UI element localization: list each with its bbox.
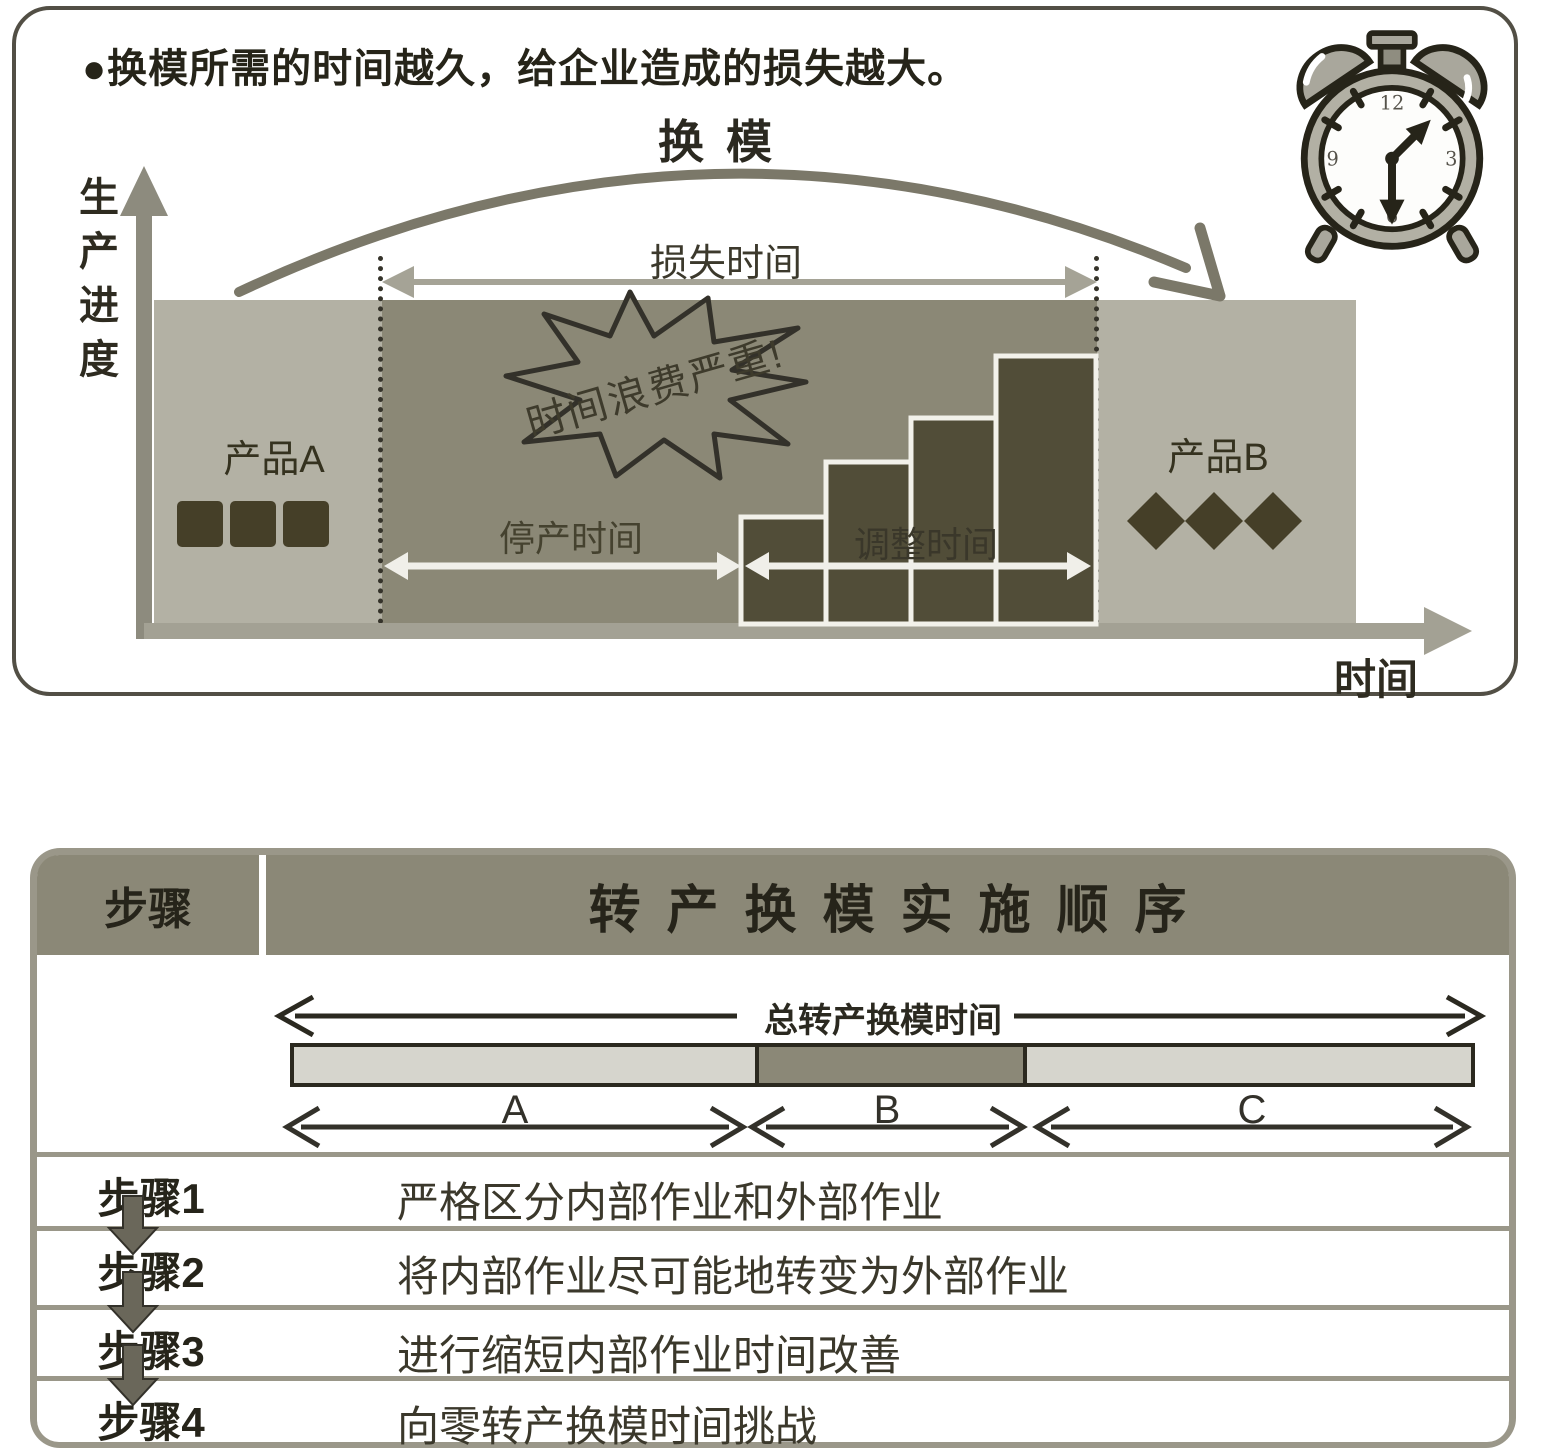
clock-face: 12 3 6 9 (1304, 71, 1480, 247)
stop-time-label: 停产时间 (461, 510, 681, 562)
step4-label: 步骤4 (37, 1381, 265, 1442)
header-divider (259, 855, 266, 955)
header-title-cell: 转产换模实施顺序 (266, 855, 1509, 955)
y-axis-label: 生产进度 (66, 176, 124, 556)
product-b-label: 产品B (1138, 426, 1298, 481)
page: ●换模所需的时间越久，给企业造成的损失越大。 (0, 0, 1543, 1452)
adjust-time-label: 调整时间 (816, 516, 1036, 568)
segment-c (1027, 1047, 1471, 1083)
step1-desc: 严格区分内部作业和外部作业 (265, 1157, 1509, 1226)
segment-b (755, 1047, 1027, 1083)
clock-number-12: 12 (1380, 92, 1405, 115)
changeover-block (382, 300, 1097, 624)
step-rows: 步骤1 严格区分内部作业和外部作业 步骤2 将内部作业尽可能地转变为外部作业 步… (37, 1152, 1509, 1442)
alarm-clock-icon: 12 3 6 9 (1278, 24, 1506, 268)
bullet-text: ●换模所需的时间越久，给企业造成的损失越大。 (82, 36, 968, 94)
segment-c-label: C (1238, 1088, 1267, 1133)
segment-bar (290, 1043, 1475, 1087)
x-axis-label: 时间 (1334, 646, 1418, 707)
segment-b-label: B (874, 1088, 901, 1133)
table-row-step3: 步骤3 进行缩短内部作业时间改善 (37, 1305, 1509, 1376)
step4-desc: 向零转产换模时间挑战 (265, 1381, 1509, 1442)
product-a-label: 产品A (184, 428, 364, 483)
header-step-cell: 步骤 (37, 855, 259, 955)
dotted-line-end (1094, 256, 1099, 624)
step2-label: 步骤2 (37, 1231, 265, 1305)
dotted-line-start (378, 256, 383, 624)
table-header: 步骤 转产换模实施顺序 (37, 855, 1509, 955)
step3-desc: 进行缩短内部作业时间改善 (265, 1310, 1509, 1376)
total-time-label: 总转产换模时间 (752, 993, 1014, 1042)
clock-number-9: 9 (1327, 147, 1339, 170)
table-row-step2: 步骤2 将内部作业尽可能地转变为外部作业 (37, 1226, 1509, 1305)
step2-desc: 将内部作业尽可能地转变为外部作业 (265, 1231, 1509, 1305)
table-row-step1: 步骤1 严格区分内部作业和外部作业 (37, 1152, 1509, 1226)
step1-label: 步骤1 (37, 1157, 265, 1226)
smed-steps-table: 步骤 转产换模实施顺序 (30, 848, 1516, 1448)
table-row-step4: 步骤4 向零转产换模时间挑战 (37, 1376, 1509, 1442)
loss-time-label: 损失时间 (596, 232, 856, 287)
table-inner: 步骤 转产换模实施顺序 (37, 855, 1509, 1438)
changeover-loss-panel: ●换模所需的时间越久，给企业造成的损失越大。 (12, 6, 1518, 696)
clock-number-3: 3 (1445, 147, 1457, 170)
step3-label: 步骤3 (37, 1310, 265, 1376)
segment-a (294, 1047, 755, 1083)
changeover-time-diagram: 总转产换模时间 A B C (37, 955, 1509, 1152)
changeover-title: 换模 (606, 106, 846, 172)
segment-a-label: A (502, 1088, 529, 1133)
